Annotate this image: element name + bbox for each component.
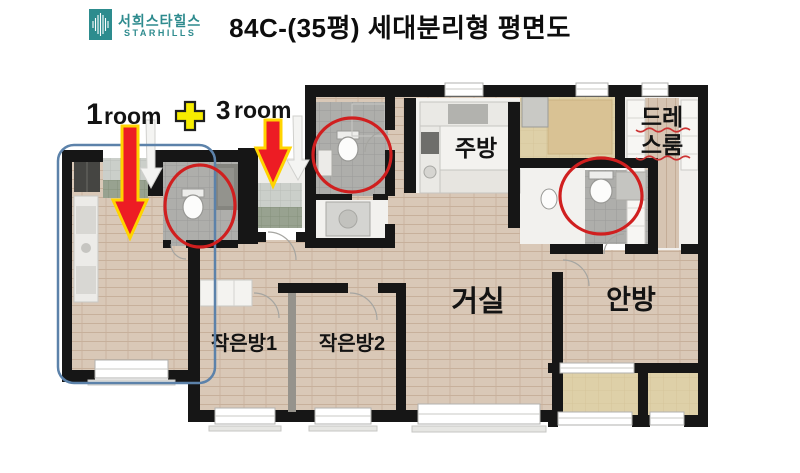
master-bedroom-label: 안방 <box>606 285 656 315</box>
dressroom-label-line2: 스룸 <box>641 132 683 158</box>
small-room1-label: 작은방1 <box>211 332 277 355</box>
balcony-a-floor <box>556 373 638 417</box>
right-unit-count: 3 <box>216 95 230 125</box>
toilet3-icon <box>590 179 612 203</box>
kitchen-sink-icon <box>424 166 436 178</box>
balcony-b-floor <box>648 373 698 417</box>
living-room-label: 거실 <box>451 285 504 318</box>
toilet1-icon <box>183 195 203 219</box>
pantry-washer-icon <box>522 97 548 127</box>
room-divider-partition <box>288 293 296 412</box>
right-unit-word: room <box>234 97 292 123</box>
left-unit-count: 1 <box>86 98 103 131</box>
range-icon <box>448 104 488 124</box>
left-unit-word: room <box>104 103 162 129</box>
main-entry-tiles-green <box>256 207 302 228</box>
plus-icon <box>176 102 204 130</box>
toilet2-icon <box>338 137 358 161</box>
oven-icon <box>421 132 439 154</box>
floor-plan: 주방 드레 스룸 거실 안방 작은방1 작은방2 1 room 3 room <box>0 0 800 473</box>
main-entry-tiles <box>256 183 302 207</box>
pantry-rug <box>548 100 612 154</box>
kitchen-label: 주방 <box>455 135 497 161</box>
sink2 <box>318 150 332 176</box>
corridor-closet <box>200 280 252 306</box>
dress-closet-right <box>681 100 698 170</box>
small-room2-label: 작은방2 <box>319 332 385 355</box>
entry-hall-floor <box>250 240 305 285</box>
toilet3-tank <box>589 171 613 179</box>
dressroom-label-line1: 드레 <box>641 104 683 130</box>
sink3-icon <box>541 189 557 209</box>
